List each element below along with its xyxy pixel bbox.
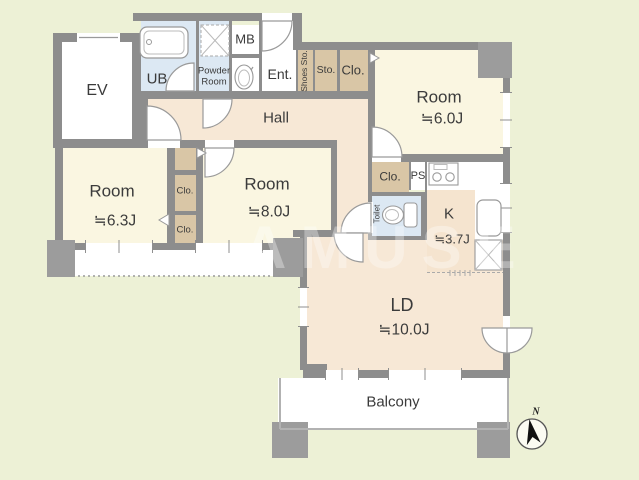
entry-closet-label: Clo. xyxy=(341,64,364,79)
side-strip-floor xyxy=(75,250,273,276)
elevator-label: EV xyxy=(86,82,107,100)
bath-label: UB xyxy=(147,72,168,89)
room-west-area: ≒6.3J xyxy=(94,212,136,229)
living-dining-name: LD xyxy=(390,295,413,315)
floor-plan: EV UB Powder Room MB Ent. Shoes Sto. Sto… xyxy=(0,0,639,480)
powder-room-label: Powder Room xyxy=(193,66,235,87)
refrigerator-space-icon xyxy=(475,240,502,270)
room-west-name: Room xyxy=(89,181,134,200)
storage-label: Sto. xyxy=(317,65,336,77)
living-dining-area: ≒10.0J xyxy=(379,321,430,338)
closet-2-label: Clo. xyxy=(177,226,194,237)
kitchen-area: ≒3.7J xyxy=(434,233,469,248)
meter-box-label: MB xyxy=(235,33,255,48)
closet-1-label: Clo. xyxy=(177,187,194,198)
shoes-storage-label: Shoes Sto. xyxy=(300,50,310,92)
room-center-area: ≒8.0J xyxy=(248,203,290,220)
room-east-name: Room xyxy=(416,87,461,106)
north-label: N xyxy=(532,406,539,417)
kitchen-name: K xyxy=(444,207,454,224)
washbasin-icon xyxy=(235,65,253,89)
stove-icon xyxy=(429,163,458,185)
room-center-name: Room xyxy=(244,174,289,193)
hall-label: Hall xyxy=(263,111,289,128)
toilet-label: Toilet xyxy=(374,205,383,224)
room-east-area: ≒6.0J xyxy=(421,110,463,127)
sink-icon xyxy=(477,200,501,236)
pipe-space-label: PS xyxy=(411,170,426,182)
closet-east-label: Clo. xyxy=(379,170,400,183)
compass-icon xyxy=(517,418,547,449)
laundry-space-icon xyxy=(201,25,229,56)
bathtub-icon xyxy=(140,27,188,58)
entrance-label: Ent. xyxy=(268,67,293,83)
balcony-label: Balcony xyxy=(366,395,419,412)
